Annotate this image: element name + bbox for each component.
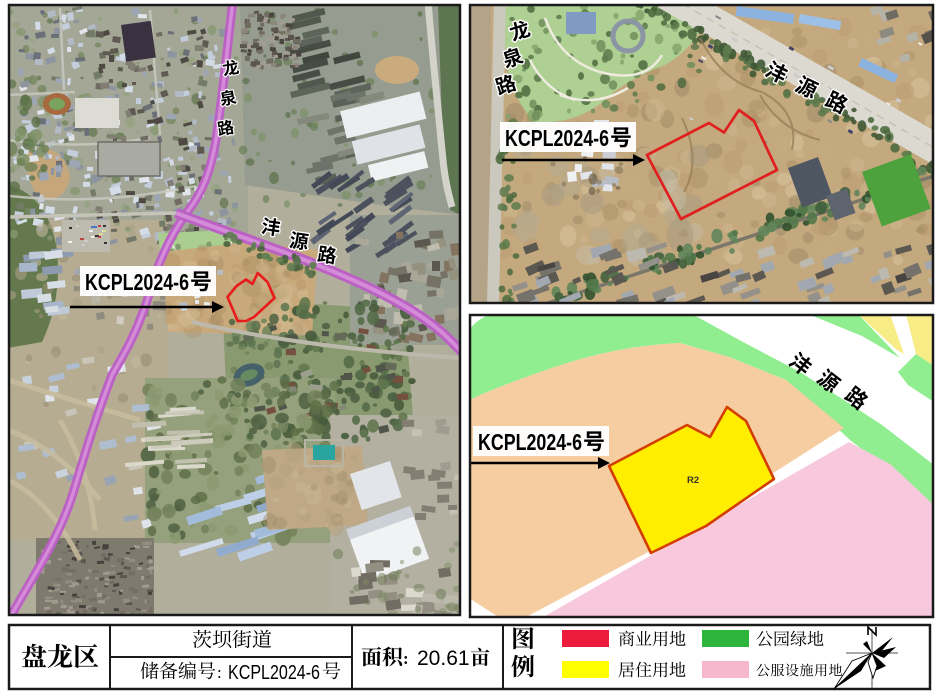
svg-text:KCPL2024-6: KCPL2024-6: [505, 125, 609, 151]
svg-text:KCPL2024-6: KCPL2024-6: [478, 429, 582, 455]
svg-text:KCPL2024-6: KCPL2024-6: [228, 662, 320, 684]
svg-text:20.61: 20.61: [417, 647, 470, 670]
svg-text:R2: R2: [687, 475, 699, 486]
svg-text:KCPL2024-6: KCPL2024-6: [85, 269, 189, 295]
svg-text::: :: [217, 663, 222, 682]
svg-text::: :: [403, 649, 409, 668]
